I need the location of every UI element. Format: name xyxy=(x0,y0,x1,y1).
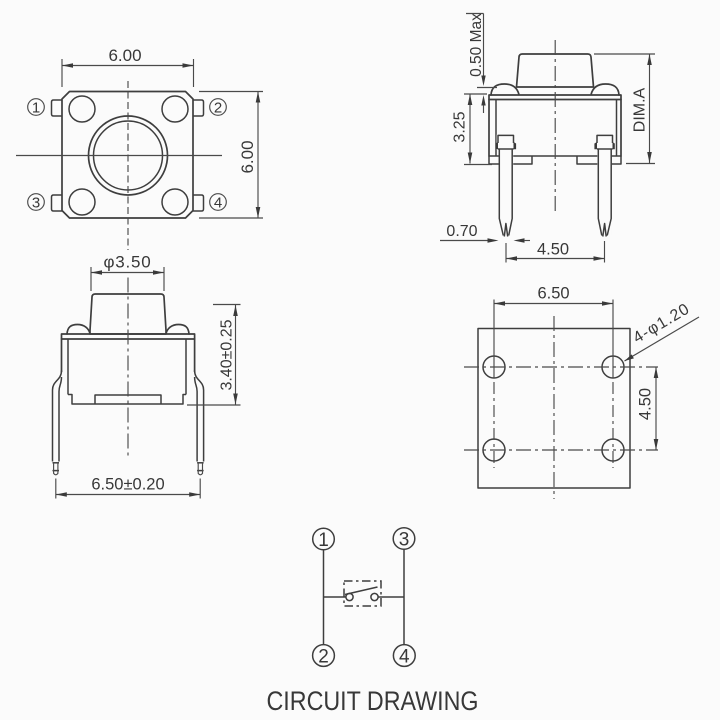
svg-text:1: 1 xyxy=(32,99,40,116)
svg-text:CIRCUIT DRAWING: CIRCUIT DRAWING xyxy=(267,686,479,716)
svg-text:6.00: 6.00 xyxy=(238,140,257,173)
svg-text:4-φ1.20: 4-φ1.20 xyxy=(630,300,693,347)
svg-text:0.50 Max: 0.50 Max xyxy=(468,13,485,77)
svg-text:4.50: 4.50 xyxy=(637,388,655,420)
svg-text:3.40±0.25: 3.40±0.25 xyxy=(219,319,236,390)
svg-text:4.50: 4.50 xyxy=(537,241,569,259)
svg-text:4: 4 xyxy=(214,194,222,211)
svg-text:φ3.50: φ3.50 xyxy=(103,253,151,272)
svg-text:3.25: 3.25 xyxy=(452,111,469,142)
svg-text:1: 1 xyxy=(318,530,329,551)
svg-text:3: 3 xyxy=(399,529,410,550)
svg-text:3: 3 xyxy=(32,194,40,211)
svg-text:6.50: 6.50 xyxy=(537,285,569,303)
svg-text:4: 4 xyxy=(399,646,410,667)
svg-text:6.00: 6.00 xyxy=(108,46,141,65)
svg-text:DIM.A: DIM.A xyxy=(632,87,649,132)
svg-text:2: 2 xyxy=(318,646,329,667)
svg-text:0.70: 0.70 xyxy=(446,223,477,240)
svg-text:2: 2 xyxy=(214,99,222,116)
svg-text:6.50±0.20: 6.50±0.20 xyxy=(91,476,164,494)
